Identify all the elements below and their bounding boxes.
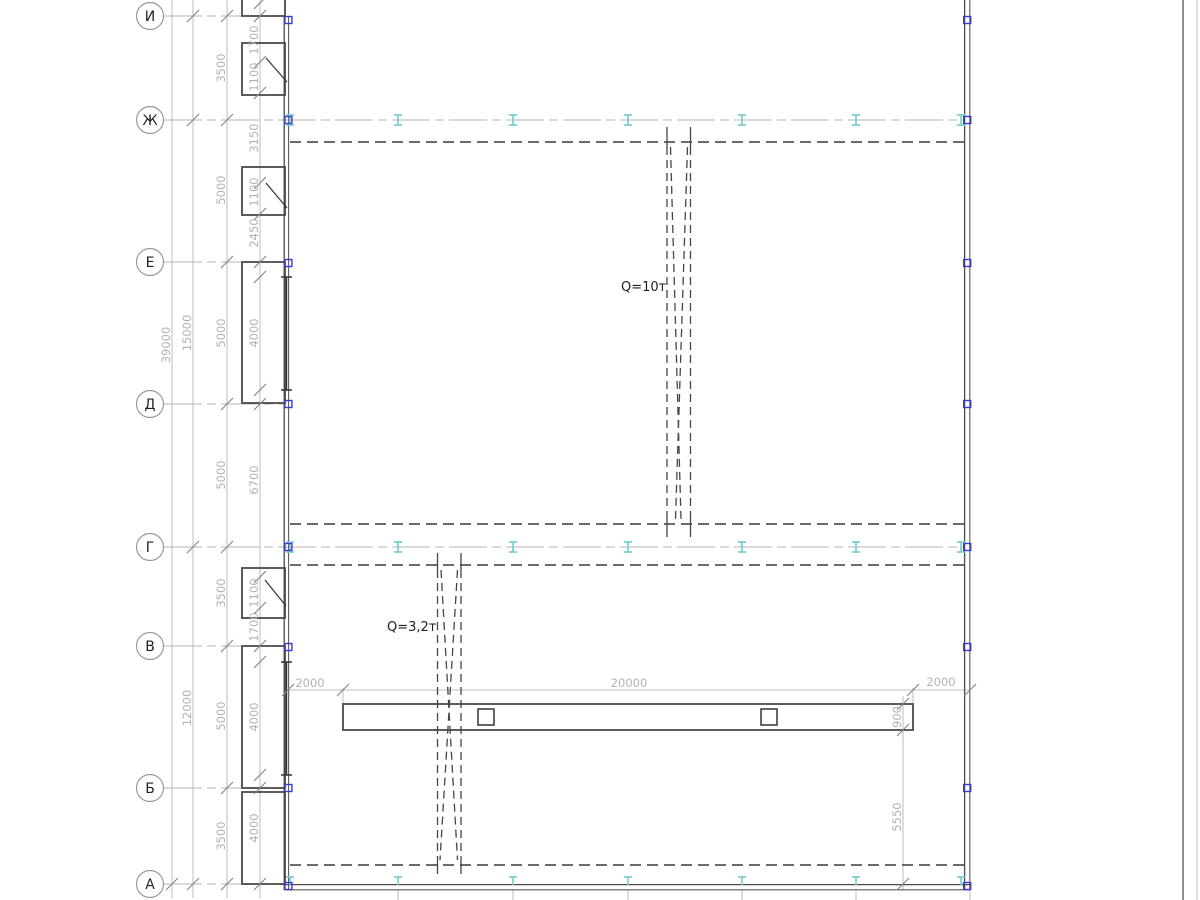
dim-inner: 2450 xyxy=(247,218,261,247)
dim-bay: 5000 xyxy=(214,318,228,347)
dim-bay: 3500 xyxy=(214,578,228,607)
dim-bay: 5000 xyxy=(214,701,228,730)
axis-label: В xyxy=(145,639,155,655)
crane-label-q3-2: Q=3,2т xyxy=(387,620,437,635)
dim-inner: 1700 xyxy=(247,25,261,54)
dim-inner: 4000 xyxy=(247,702,261,731)
right-wall xyxy=(965,0,970,890)
dim-inner: 1100 xyxy=(247,177,261,206)
drawing-canvas: И Ж Е Д Г В Б А 39000 15000 12000 3500 5… xyxy=(0,0,1200,900)
axis-bubbles: И Ж Е Д Г В Б А xyxy=(137,3,164,898)
axis-label: Б xyxy=(145,781,155,797)
dim-bay: 3500 xyxy=(214,53,228,82)
axis-label: А xyxy=(145,877,155,893)
dim-beam-2000-left: 2000 xyxy=(295,676,324,690)
axis-label: Е xyxy=(146,255,155,271)
crane-runway-lines xyxy=(290,142,964,865)
dim-inner: 4000 xyxy=(247,813,261,842)
dim-beam-900: 900 xyxy=(890,706,904,728)
dim-inner: 1100 xyxy=(247,578,261,607)
dim-beam-5550: 5550 xyxy=(890,802,904,831)
steel-column-symbols xyxy=(286,115,965,885)
runway-beam xyxy=(343,704,913,730)
dim-15000: 15000 xyxy=(180,315,194,352)
axis-label: И xyxy=(145,9,155,25)
dimension-ticks xyxy=(166,0,976,890)
dim-inner: 4000 xyxy=(247,318,261,347)
dim-beam-20000: 20000 xyxy=(611,676,648,690)
crane-track-q3-2 xyxy=(438,553,462,874)
dim-inner: 1700 xyxy=(247,612,261,641)
dim-bay: 5000 xyxy=(214,175,228,204)
bay-opening-edges xyxy=(281,277,292,775)
crane-track-q10 xyxy=(667,127,691,537)
bottom-wall xyxy=(284,885,970,890)
floor-plan-drawing: И Ж Е Д Г В Б А 39000 15000 12000 3500 5… xyxy=(0,0,1200,900)
beam-pad xyxy=(761,709,777,725)
dim-inner: 6700 xyxy=(247,465,261,494)
dim-inner: 3150 xyxy=(247,123,261,152)
dim-inner: 1100 xyxy=(247,62,261,91)
dim-beam-2000-right: 2000 xyxy=(926,675,955,689)
dimension-texts: 39000 15000 12000 3500 5000 5000 5000 35… xyxy=(159,25,956,850)
dimension-chain-lines xyxy=(172,0,1197,900)
dim-12000: 12000 xyxy=(180,690,194,727)
dim-bay: 3500 xyxy=(214,821,228,850)
dim-overall-39000: 39000 xyxy=(159,327,173,364)
column-nodes xyxy=(285,17,971,890)
crane-label-q10: Q=10т xyxy=(621,280,667,295)
axis-label: Ж xyxy=(142,113,157,129)
axis-label: Д xyxy=(145,397,156,413)
axis-label: Г xyxy=(146,540,155,556)
dim-bay: 5000 xyxy=(214,460,228,489)
beam-pad xyxy=(478,709,494,725)
